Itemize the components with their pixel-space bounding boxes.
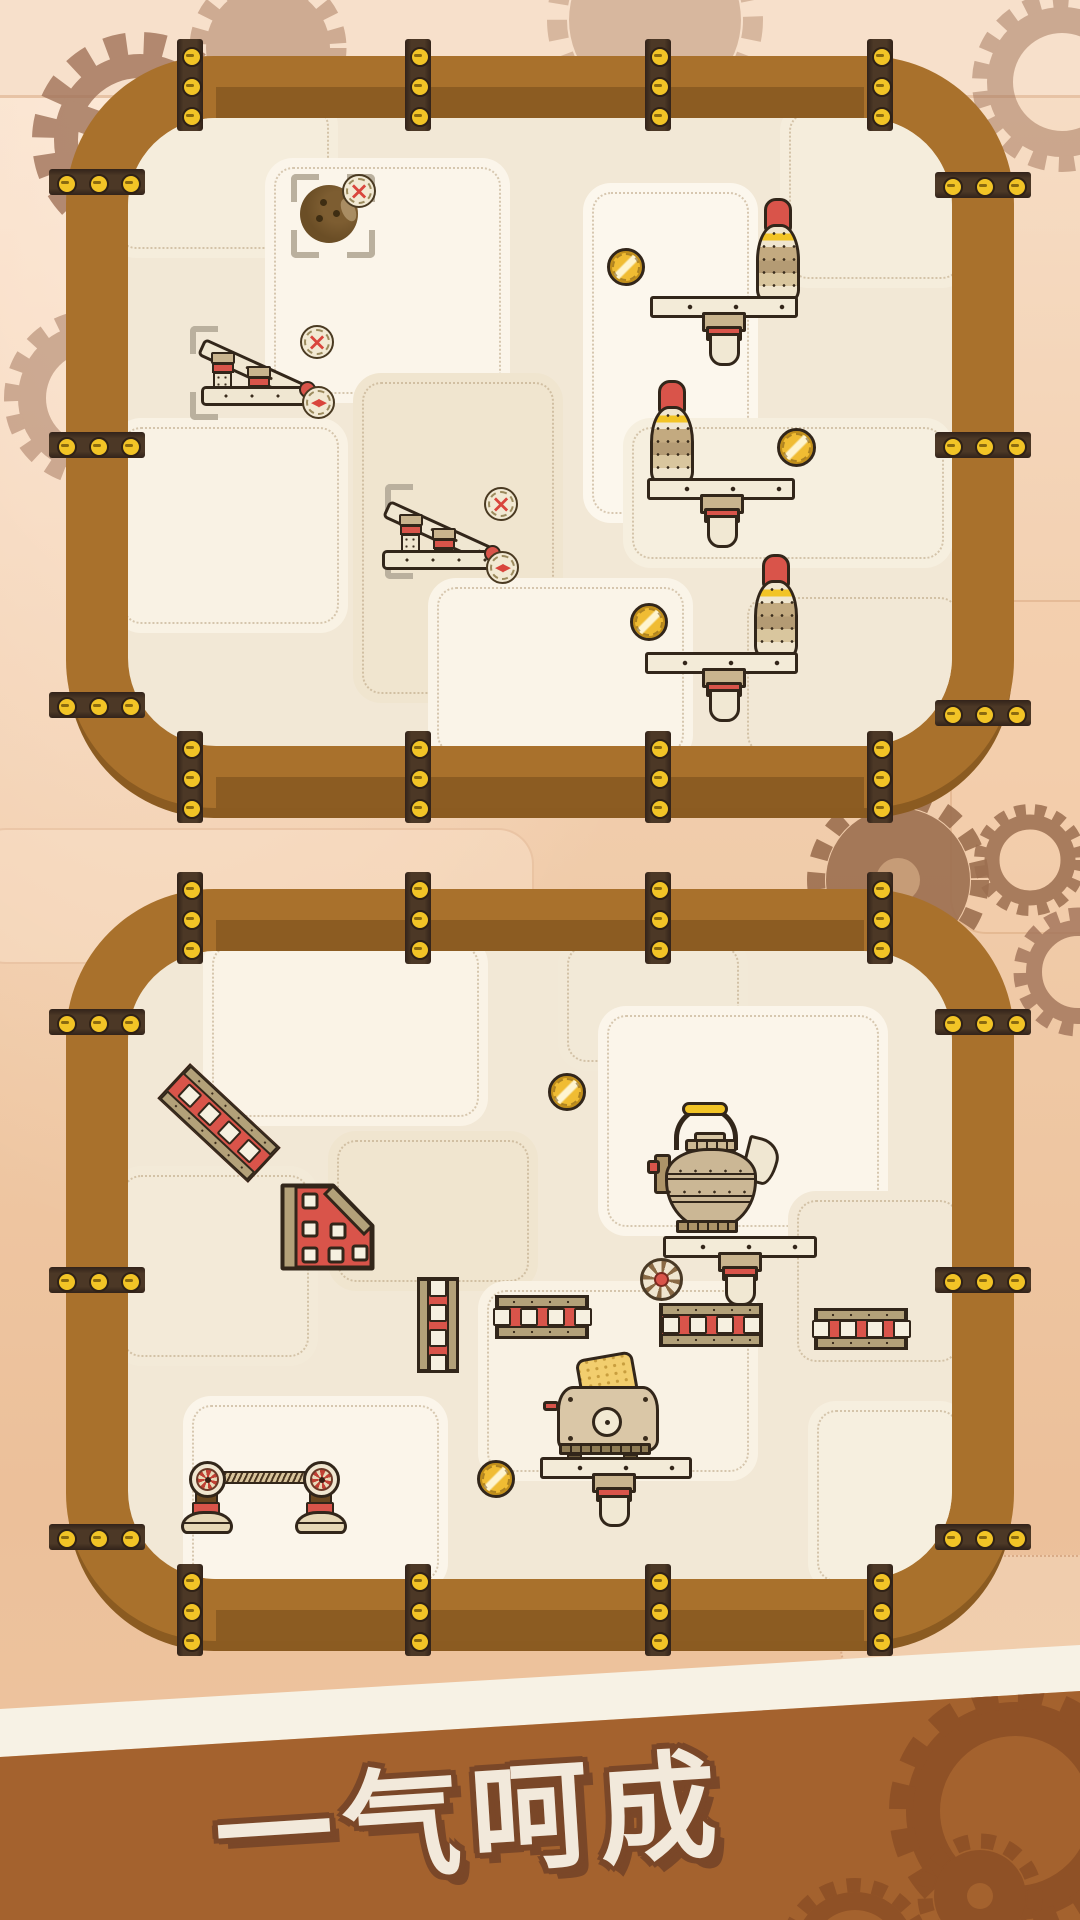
bolt-icon [121,1014,141,1034]
post-pulley [189,1461,226,1498]
bolt-icon [975,705,995,725]
bolt-icon [872,880,892,900]
girder [659,1303,763,1347]
bolt-icon [872,940,892,960]
bolt-icon [650,799,670,819]
bolt-icon [89,437,109,457]
coin [777,428,816,467]
fan-wheel [640,1258,683,1301]
pin-body [754,580,798,660]
bowling-pin [754,554,792,654]
frame-bolt-bracket [177,39,203,131]
frame-bolt-bracket [645,39,671,131]
metal-plate [203,951,488,1126]
piston-foot [599,1495,630,1527]
move-button[interactable]: ◀▶ [302,386,335,419]
frame-bolt-bracket [177,1564,203,1656]
bolt-icon [650,880,670,900]
frame-bolt-bracket [645,1564,671,1656]
bolt-icon [650,1632,670,1652]
toaster [545,1355,665,1465]
kettle-grip [682,1102,728,1116]
frame-shading [216,777,864,808]
bowling-pin [650,380,688,480]
frame-shading [216,87,864,118]
move-horizontal-icon: ◀▶ [495,561,510,574]
piston-foot [709,689,740,722]
bolt-icon [872,799,892,819]
frame-bolt-bracket [935,1524,1031,1550]
level-canvas-top[interactable] [128,118,952,746]
bolt-icon [410,107,430,127]
frame-bolt-bracket [49,1267,145,1293]
game-screenshot: × × ◀▶ × ◀▶ [0,0,1080,1920]
corner-block [279,1182,376,1272]
frame-bolt-bracket [867,1564,893,1656]
pin-body [756,224,800,304]
delete-button[interactable]: × [300,325,334,359]
bolt-icon [650,769,670,789]
bolt-icon [410,1572,430,1592]
bolt-icon [943,1272,963,1292]
kettle-base [676,1220,738,1233]
bolt-icon [89,1272,109,1292]
coin [548,1073,586,1111]
frame-bolt-bracket [867,872,893,964]
bolt-icon [89,174,109,194]
kettle-knob [647,1160,660,1174]
bolt-icon [943,1014,963,1034]
bolt-icon [872,1572,892,1592]
coin [630,603,668,641]
bolt-icon [872,1632,892,1652]
piston-foot [725,1274,756,1306]
delete-icon: × [491,492,511,516]
frame-bolt-bracket [867,39,893,131]
frame-bolt-bracket [405,872,431,964]
bolt-icon [650,1572,670,1592]
bolt-icon [1007,177,1027,197]
bolt-icon [650,739,670,759]
frame-bolt-bracket [935,1009,1031,1035]
bolt-icon [57,437,77,457]
bolt-icon [872,107,892,127]
frame-bolt-bracket [405,731,431,823]
bolt-icon [410,880,430,900]
bolt-icon [182,47,202,67]
metal-plate [808,1401,952,1579]
bolt-icon [182,107,202,127]
bolt-icon [182,910,202,930]
bolt-icon [1007,437,1027,457]
bolt-icon [410,1632,430,1652]
piston-foot [709,333,740,366]
bolt-icon [182,1572,202,1592]
toaster-lever [543,1401,559,1411]
bolt-icon [975,177,995,197]
bolt-icon [182,940,202,960]
frame-shading [216,920,864,951]
bolt-icon [1007,1014,1027,1034]
bolt-icon [650,77,670,97]
frame-shading [216,1610,864,1641]
bolt-icon [410,1602,430,1622]
bolt-icon [182,769,202,789]
delete-icon: × [349,179,369,203]
bolt-icon [872,47,892,67]
frame-bolt-bracket [645,872,671,964]
bolt-icon [975,437,995,457]
coin [607,248,645,286]
delete-button[interactable]: × [342,174,376,208]
bolt-icon [182,1602,202,1622]
frame-bolt-bracket [405,39,431,131]
kettle-body [665,1148,757,1230]
bolt-icon [121,174,141,194]
rope [219,1471,305,1484]
bolt-icon [182,880,202,900]
post-pulley [303,1461,340,1498]
delete-icon: × [307,330,327,354]
bolt-icon [121,437,141,457]
bolt-icon [1007,1272,1027,1292]
bolt-icon [872,769,892,789]
bolt-icon [410,769,430,789]
bolt-icon [89,697,109,717]
coin [477,1460,515,1498]
bolt-icon [57,174,77,194]
bolt-icon [943,437,963,457]
frame-bolt-bracket [49,1524,145,1550]
delete-button[interactable]: × [484,487,518,521]
metal-plate [780,118,952,288]
kettle [652,1096,782,1241]
frame-bolt-bracket [49,169,145,195]
bolt-icon [943,177,963,197]
frame-bolt-bracket [49,1009,145,1035]
frame-bolt-bracket [645,731,671,823]
bolt-icon [943,1529,963,1549]
bolt-icon [872,77,892,97]
bolt-icon [182,77,202,97]
bolt-icon [975,1529,995,1549]
bolt-icon [650,940,670,960]
piston-foot [707,515,738,548]
bolt-icon [872,739,892,759]
frame-bolt-bracket [867,731,893,823]
bolt-icon [872,910,892,930]
bolt-icon [650,1602,670,1622]
bolt-icon [1007,705,1027,725]
bolt-icon [872,1602,892,1622]
bolt-icon [182,1632,202,1652]
metal-plate [128,418,348,633]
move-button[interactable]: ◀▶ [486,551,519,584]
pulley-hub [310,1468,333,1491]
bolt-icon [182,799,202,819]
level-canvas-bottom[interactable] [128,951,952,1579]
bolt-icon [650,47,670,67]
move-horizontal-icon: ◀▶ [311,396,326,409]
frame-bolt-bracket [49,692,145,718]
bolt-icon [89,1014,109,1034]
bolt-icon [57,1529,77,1549]
post-base [295,1511,347,1534]
bolt-icon [1007,1529,1027,1549]
bolt-icon [410,910,430,930]
post-base [181,1511,233,1534]
bolt-icon [975,1014,995,1034]
toaster-dial [592,1407,622,1437]
girder [495,1295,589,1339]
bolt-icon [943,705,963,725]
bowling-pin [756,198,794,298]
bolt-icon [410,940,430,960]
selection-corner [347,230,375,258]
bolt-icon [650,107,670,127]
frame-bolt-bracket [177,731,203,823]
frame-bolt-bracket [935,700,1031,726]
level-frame-top [66,56,1014,808]
bolt-icon [121,1529,141,1549]
bolt-icon [410,799,430,819]
bolt-icon [975,1272,995,1292]
frame-bolt-bracket [935,172,1031,198]
pulley-hub [196,1468,219,1491]
bolt-icon [410,739,430,759]
bolt-icon [57,697,77,717]
frame-bolt-bracket [405,1564,431,1656]
frame-bolt-bracket [935,1267,1031,1293]
vertical-girder [417,1277,459,1373]
bolt-icon [182,739,202,759]
bolt-icon [57,1014,77,1034]
frame-bolt-bracket [49,432,145,458]
bolt-icon [410,47,430,67]
pin-body [650,406,694,486]
bolt-icon [57,1272,77,1292]
girder [814,1308,908,1350]
bolt-icon [121,1272,141,1292]
bolt-icon [410,77,430,97]
bolt-icon [89,1529,109,1549]
ramp-base [382,550,498,570]
bolt-icon [650,910,670,930]
frame-bolt-bracket [177,872,203,964]
bolt-icon [121,697,141,717]
frame-bolt-bracket [935,432,1031,458]
